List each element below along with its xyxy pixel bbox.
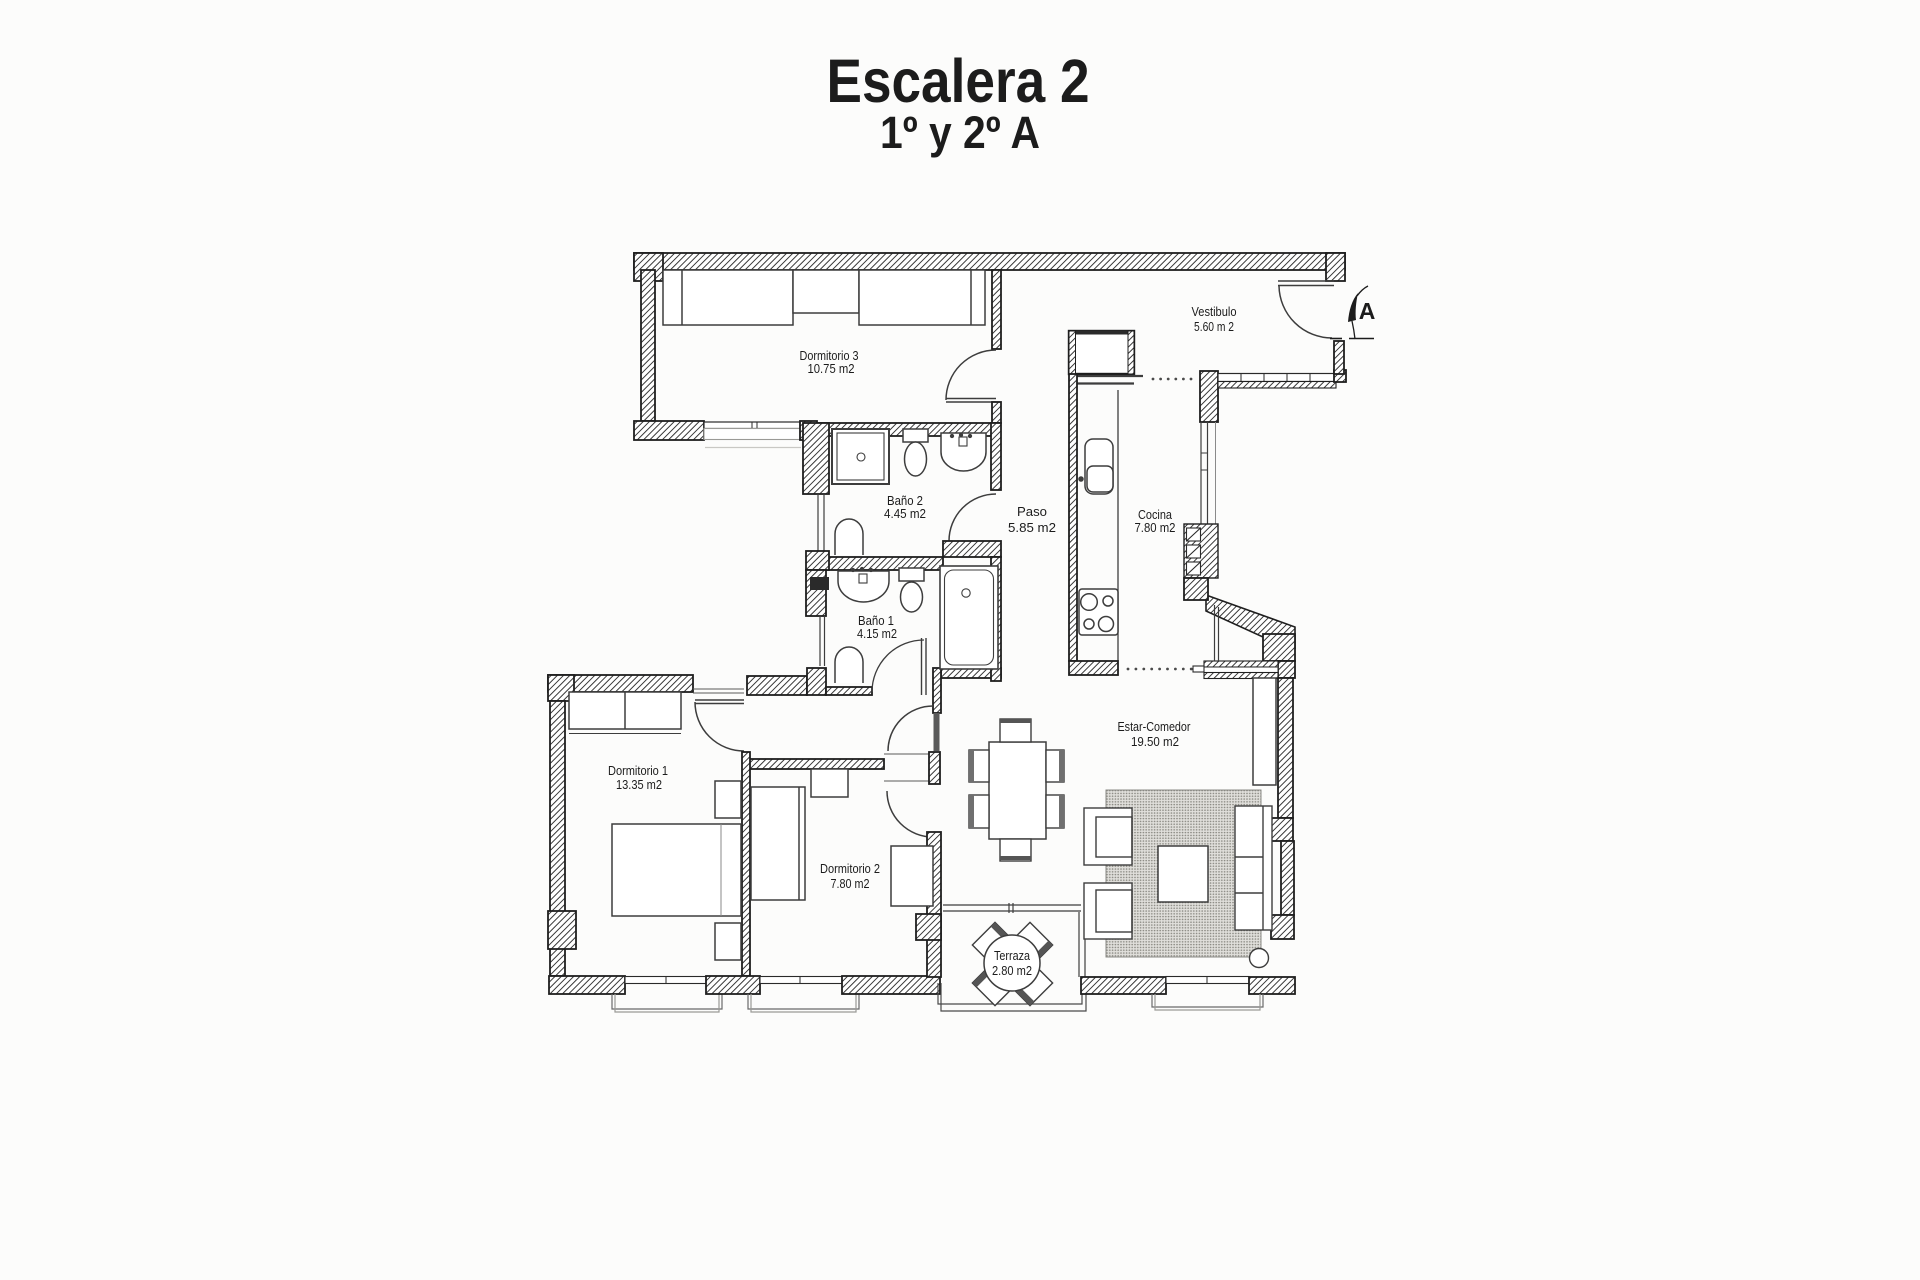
svg-text:7.80 m2: 7.80 m2 (1135, 520, 1176, 535)
svg-text:5.60 m 2: 5.60 m 2 (1194, 319, 1234, 334)
svg-text:Paso: Paso (1017, 504, 1047, 519)
svg-text:Escalera 2: Escalera 2 (827, 47, 1090, 115)
svg-text:Terraza: Terraza (994, 948, 1031, 963)
svg-text:Estar-Comedor: Estar-Comedor (1118, 719, 1192, 734)
svg-text:1º y 2º A: 1º y 2º A (880, 107, 1040, 158)
svg-text:13.35 m2: 13.35 m2 (616, 777, 662, 792)
svg-text:Dormitorio 1: Dormitorio 1 (608, 763, 668, 778)
svg-text:19.50 m2: 19.50 m2 (1131, 734, 1179, 749)
svg-text:4.15 m2: 4.15 m2 (857, 626, 897, 641)
svg-text:7.80 m2: 7.80 m2 (831, 876, 870, 891)
svg-text:4.45 m2: 4.45 m2 (884, 506, 926, 521)
svg-text:2.80 m2: 2.80 m2 (992, 963, 1032, 978)
svg-text:Dormitorio 2: Dormitorio 2 (820, 861, 880, 876)
svg-text:Vestibulo: Vestibulo (1192, 304, 1237, 319)
svg-text:10.75 m2: 10.75 m2 (808, 361, 855, 376)
svg-text:A: A (1359, 298, 1376, 324)
svg-text:5.85 m2: 5.85 m2 (1008, 520, 1056, 535)
